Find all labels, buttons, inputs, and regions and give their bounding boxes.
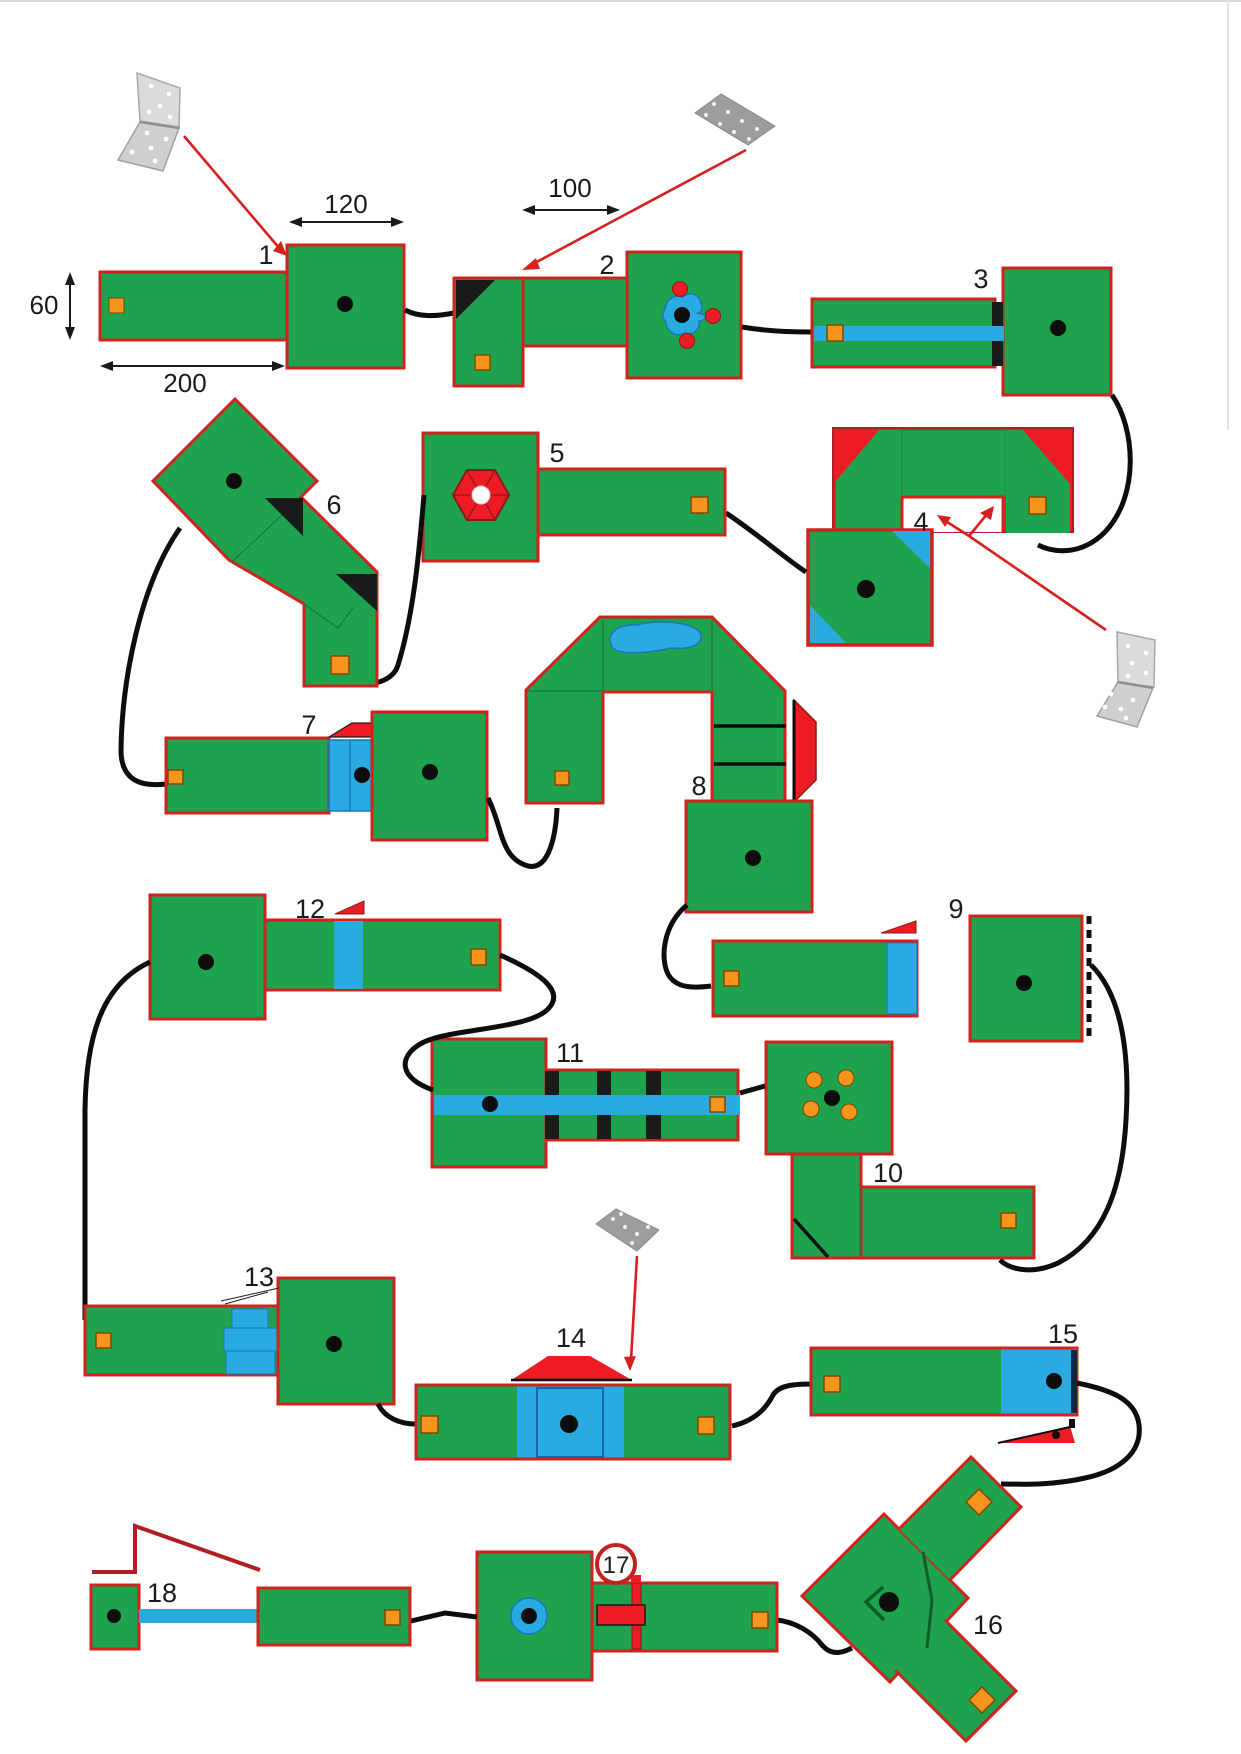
svg-text:15: 15	[1048, 1319, 1078, 1349]
svg-text:200: 200	[163, 368, 206, 398]
svg-text:100: 100	[548, 173, 591, 203]
svg-text:1: 1	[258, 240, 273, 270]
svg-text:3: 3	[973, 264, 988, 294]
svg-text:13: 13	[244, 1262, 274, 1292]
svg-text:17: 17	[603, 1552, 630, 1579]
svg-text:5: 5	[549, 438, 564, 468]
svg-text:18: 18	[147, 1578, 177, 1608]
svg-text:10: 10	[873, 1158, 903, 1188]
svg-text:2: 2	[599, 250, 614, 280]
svg-text:8: 8	[691, 771, 706, 801]
svg-text:60: 60	[30, 290, 59, 320]
svg-text:7: 7	[301, 710, 316, 740]
svg-text:120: 120	[324, 189, 367, 219]
svg-text:14: 14	[556, 1323, 586, 1353]
svg-text:9: 9	[948, 894, 963, 924]
svg-text:16: 16	[973, 1610, 1003, 1640]
svg-text:12: 12	[295, 894, 325, 924]
svg-text:11: 11	[556, 1038, 584, 1068]
svg-text:4: 4	[913, 507, 928, 537]
svg-text:6: 6	[326, 490, 341, 520]
